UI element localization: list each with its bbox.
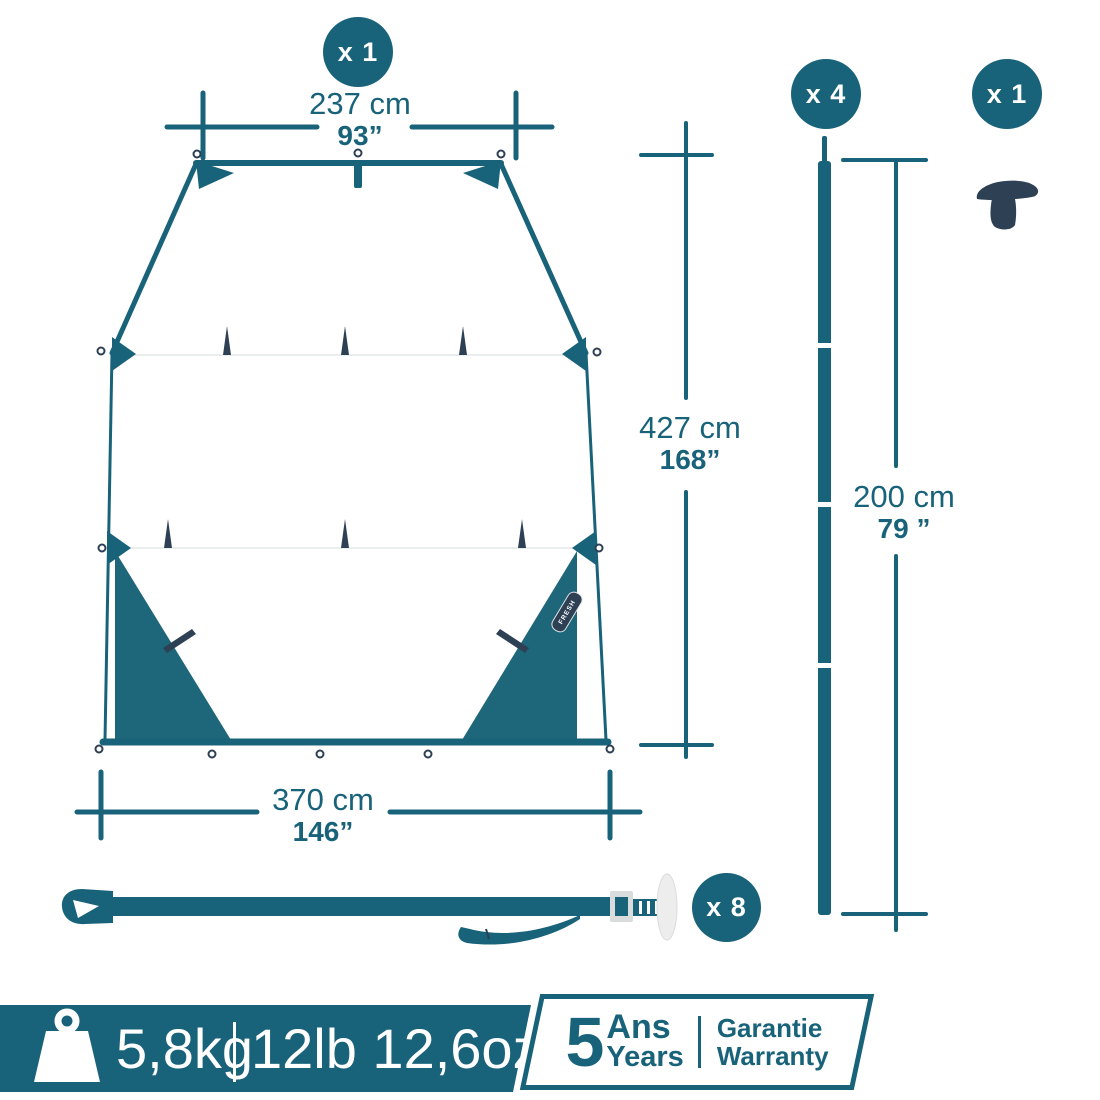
- diagram-canvas: [0, 0, 1100, 1100]
- size-label: XL: [594, 657, 601, 666]
- warranty-fr: Ans: [606, 1012, 683, 1043]
- dim-top-width-in: 93”: [260, 121, 460, 150]
- dim-length-label: 427 cm 168”: [590, 412, 790, 474]
- tarp-center-tab: [354, 163, 362, 188]
- strap-icon: [62, 874, 677, 945]
- dim-length-cm: 427 cm: [590, 412, 790, 445]
- dim-pole-length-lines: [843, 160, 926, 930]
- tarp-count-badge: x 1: [323, 17, 393, 87]
- warranty-years-words: Ans Years: [606, 1012, 683, 1072]
- dim-top-width-label: 237 cm 93”: [260, 88, 460, 150]
- dim-length-in: 168”: [590, 445, 790, 474]
- brand-separator: [594, 671, 600, 672]
- weight-metric: 5,8kg: [116, 1021, 253, 1077]
- dim-bottom-width-label: 370 cm 146”: [223, 784, 423, 846]
- product-spec-infographic: x 1 x 4 x 1 x 8 237 cm 93” 427 cm 168” 3…: [0, 0, 1100, 1100]
- pole-cap-icon: [977, 181, 1038, 230]
- dim-pole-length-label: 200 cm 79 ”: [804, 481, 1004, 543]
- dim-bottom-width-cm: 370 cm: [223, 784, 423, 817]
- warranty-content: 5 Ans Years Garantie Warranty: [535, 999, 859, 1085]
- brand-name: QUECHUA: [594, 677, 600, 715]
- warranty-labels: Garantie Warranty: [717, 1014, 829, 1070]
- warranty-label-fr: Garantie: [717, 1014, 829, 1042]
- dim-top-width-cm: 237 cm: [260, 88, 460, 121]
- dim-pole-length-in: 79 ”: [804, 514, 1004, 543]
- tarp-diagram: [96, 150, 614, 758]
- warranty-badge: 5 Ans Years Garantie Warranty: [520, 994, 874, 1090]
- strap-count-badge: x 8: [692, 873, 761, 942]
- dim-bottom-width-in: 146”: [223, 817, 423, 846]
- warranty-years-number: 5: [565, 1014, 602, 1070]
- warranty-label-en: Warranty: [717, 1042, 829, 1070]
- cap-count-badge: x 1: [972, 59, 1042, 129]
- warranty-divider: [698, 1016, 701, 1068]
- dim-pole-length-cm: 200 cm: [804, 481, 1004, 514]
- pole-count-badge: x 4: [791, 59, 861, 129]
- brand-label: QUECHUA XL: [590, 640, 604, 732]
- weight-imperial: 12lb 12,6oz: [251, 1021, 541, 1077]
- warranty-en: Years: [606, 1043, 683, 1072]
- strap-disc: [657, 874, 677, 940]
